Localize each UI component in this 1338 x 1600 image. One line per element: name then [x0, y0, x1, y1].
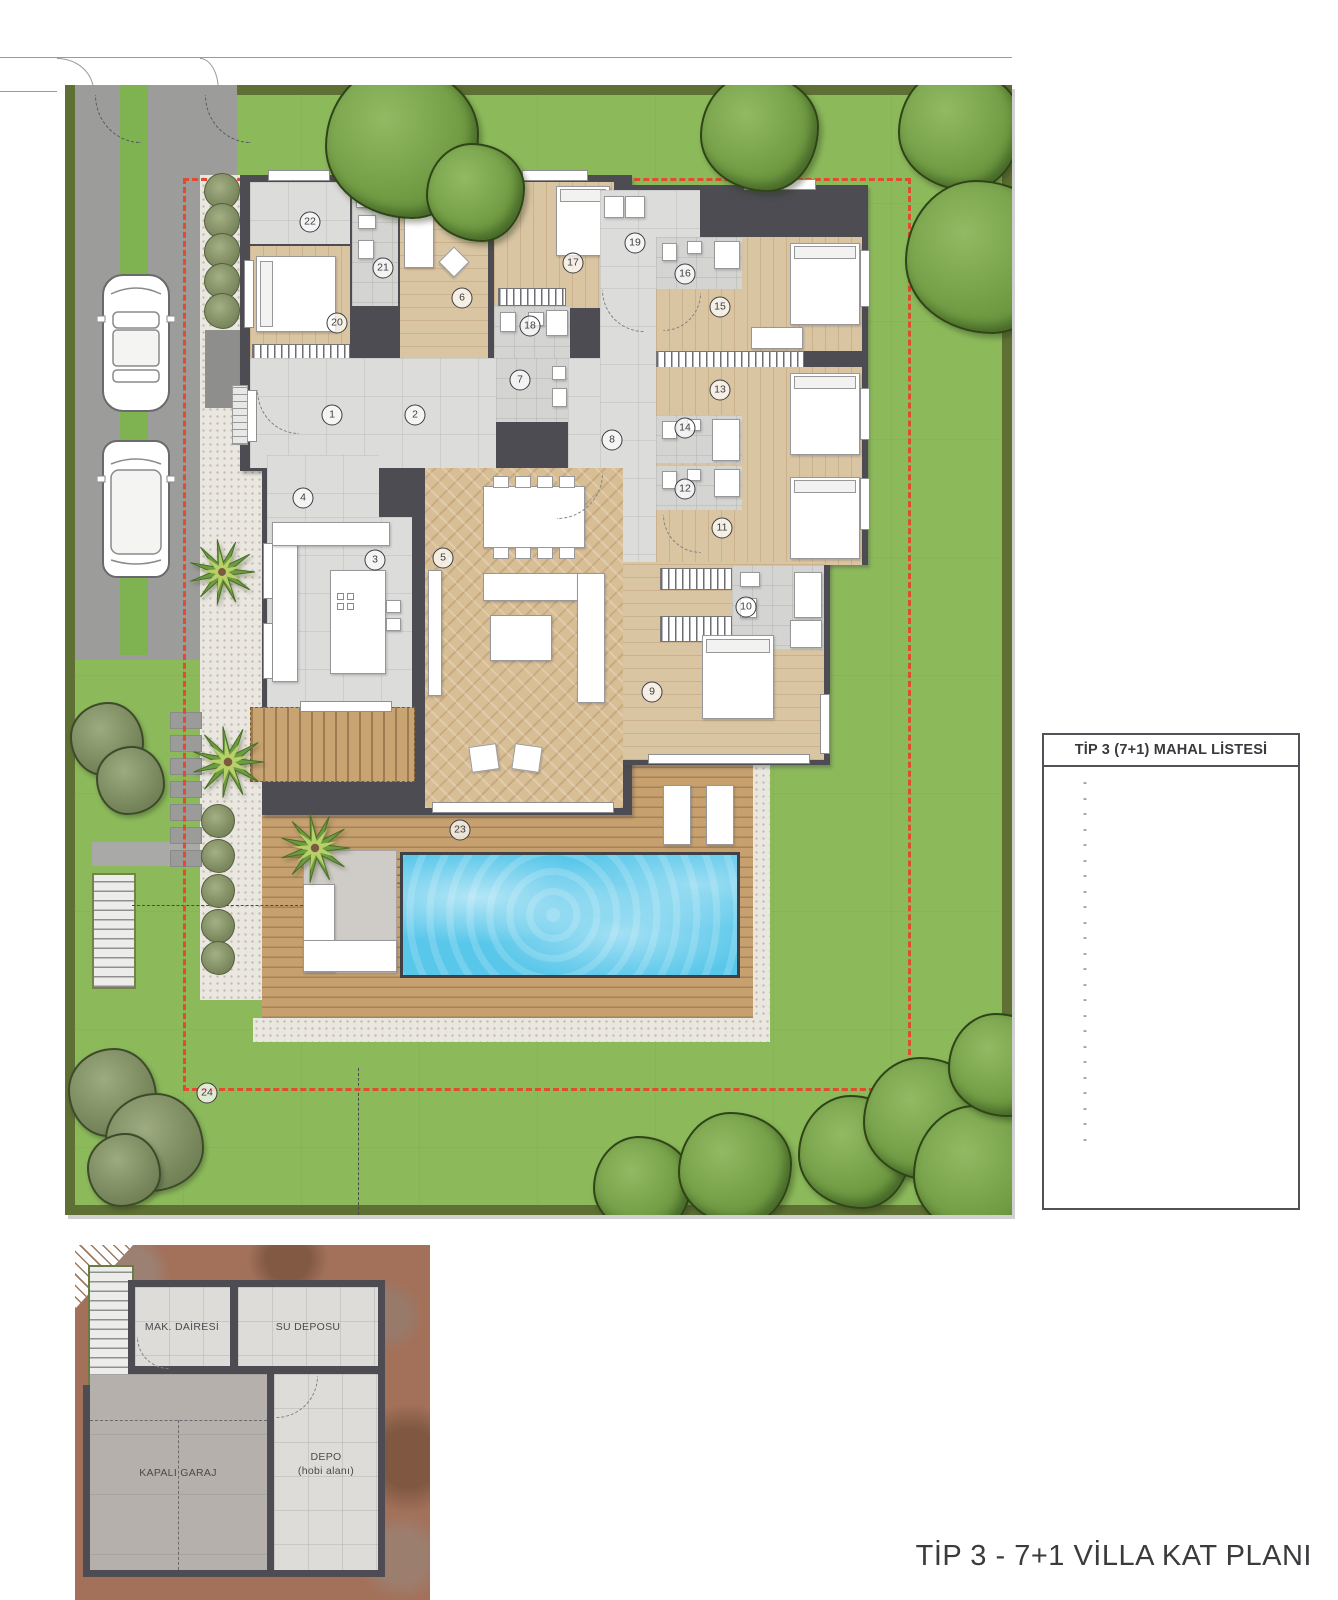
legend-row-no — [1054, 791, 1078, 807]
road-edge-line — [0, 57, 1012, 58]
legend-row: - — [1054, 992, 1288, 1008]
legend-row-name — [1092, 915, 1288, 931]
legend-row-dash: - — [1078, 806, 1092, 822]
legend-row-name — [1092, 837, 1288, 853]
room-marker: 10 — [736, 597, 757, 618]
room-marker: 18 — [520, 316, 541, 337]
legend-row: - — [1054, 884, 1288, 900]
plan-title: TİP 3 - 7+1 VİLLA KAT PLANI — [916, 1540, 1312, 1573]
legend-row: - — [1054, 1132, 1288, 1148]
floor-plan-sheet: 123456789101112131415161718192021222324 — [0, 0, 1338, 1600]
legend-row-no — [1054, 1116, 1078, 1132]
legend-row-dash: - — [1078, 992, 1092, 1008]
legend-row-no — [1054, 915, 1078, 931]
legend-row: - — [1054, 1070, 1288, 1086]
legend-row: - — [1054, 977, 1288, 993]
legend-row-dash: - — [1078, 915, 1092, 931]
legend-row-name — [1092, 961, 1288, 977]
legend-row-no — [1054, 1023, 1078, 1039]
legend-row-name — [1092, 1101, 1288, 1117]
legend-row: - — [1054, 1116, 1288, 1132]
wall — [230, 1287, 238, 1366]
legend-row: - — [1054, 775, 1288, 791]
room-marker: 21 — [373, 258, 394, 279]
room-marker: 15 — [710, 297, 731, 318]
legend-table: TİP 3 (7+1) MAHAL LİSTESİ - - - - - - - … — [1042, 733, 1300, 1210]
legend-row-dash: - — [1078, 1132, 1092, 1148]
legend-row-no — [1054, 868, 1078, 884]
basement-room-label: KAPALI GARAJ — [139, 1467, 217, 1479]
legend-row: - — [1054, 868, 1288, 884]
legend-row-dash: - — [1078, 899, 1092, 915]
legend-row-no — [1054, 1070, 1078, 1086]
legend-row: - — [1054, 1101, 1288, 1117]
legend-row-dash: - — [1078, 853, 1092, 869]
room-marker: 9 — [642, 682, 663, 703]
legend-row: - — [1054, 1039, 1288, 1055]
legend-row-dash: - — [1078, 775, 1092, 791]
legend-row-no — [1054, 961, 1078, 977]
room-marker: 20 — [327, 313, 348, 334]
legend-row-no — [1054, 1132, 1078, 1148]
area-range-note — [1303, 1250, 1310, 1270]
wall — [83, 1570, 385, 1577]
legend-row: - — [1054, 899, 1288, 915]
room-marker: 14 — [675, 418, 696, 439]
legend-row-dash: - — [1078, 1054, 1092, 1070]
legend-row-dash: - — [1078, 791, 1092, 807]
legend-row-no — [1054, 837, 1078, 853]
legend-row-no — [1054, 884, 1078, 900]
basement-room-label: MAK. DAİRESİ — [145, 1321, 219, 1333]
legend-row: - — [1054, 791, 1288, 807]
legend-row-dash: - — [1078, 961, 1092, 977]
room-marker: 24 — [197, 1083, 218, 1104]
legend-row: - — [1054, 915, 1288, 931]
room-marker: 6 — [452, 288, 473, 309]
area-range-note — [1303, 1270, 1310, 1290]
room-marker: 5 — [433, 548, 454, 569]
legend-row: - — [1054, 853, 1288, 869]
legend-row-dash: - — [1078, 946, 1092, 962]
legend-row-name — [1092, 992, 1288, 1008]
room-marker: 16 — [675, 264, 696, 285]
legend-row-dash: - — [1078, 837, 1092, 853]
room-marker: 22 — [300, 212, 321, 233]
legend-row-no — [1054, 806, 1078, 822]
room-marker: 8 — [602, 430, 623, 451]
legend-row: - — [1054, 837, 1288, 853]
site-plan: 123456789101112131415161718192021222324 — [65, 85, 1012, 1215]
wall — [128, 1287, 135, 1374]
legend-row-name — [1092, 822, 1288, 838]
legend-row: - — [1054, 822, 1288, 838]
legend-row-dash: - — [1078, 1101, 1092, 1117]
legend-row-name — [1092, 1132, 1288, 1148]
legend-row-dash: - — [1078, 1070, 1092, 1086]
legend-row-no — [1054, 899, 1078, 915]
legend-row-name — [1092, 1085, 1288, 1101]
legend-row: - — [1054, 930, 1288, 946]
room-marker: 3 — [365, 550, 386, 571]
legend-row-no — [1054, 977, 1078, 993]
legend-row-name — [1092, 1023, 1288, 1039]
basement-room-label: DEPO — [311, 1451, 342, 1463]
wall — [83, 1385, 90, 1577]
legend-row-dash: - — [1078, 1116, 1092, 1132]
legend-row: - — [1054, 806, 1288, 822]
room-marker: 12 — [675, 479, 696, 500]
wall — [267, 1374, 274, 1570]
legend-row-name — [1092, 1008, 1288, 1024]
legend-row-name — [1092, 1039, 1288, 1055]
legend-row: - — [1054, 961, 1288, 977]
legend-row: - — [1054, 1085, 1288, 1101]
legend-row: - — [1054, 1023, 1288, 1039]
legend-row-name — [1092, 946, 1288, 962]
legend-rows: - - - - - - - - - - - - - - - - - - - - — [1044, 767, 1298, 1147]
legend-row-dash: - — [1078, 1085, 1092, 1101]
legend-row-dash: - — [1078, 930, 1092, 946]
road-edge-line-2 — [0, 91, 57, 92]
room-marker: 11 — [712, 518, 733, 539]
legend-row-no — [1054, 1085, 1078, 1101]
room-marker: 23 — [450, 820, 471, 841]
room-marker: 19 — [625, 233, 646, 254]
legend-row-no — [1054, 853, 1078, 869]
legend-row-name — [1092, 1054, 1288, 1070]
legend-row-dash: - — [1078, 1023, 1092, 1039]
legend-row-name — [1092, 977, 1288, 993]
legend-row-name — [1092, 806, 1288, 822]
legend-row-name — [1092, 1116, 1288, 1132]
room-marker: 4 — [293, 488, 314, 509]
room-marker: 1 — [322, 405, 343, 426]
legend-row-name — [1092, 868, 1288, 884]
room-marker: 7 — [510, 370, 531, 391]
legend-row-no — [1054, 1054, 1078, 1070]
room-markers-layer: 123456789101112131415161718192021222324 — [65, 85, 1012, 1215]
legend-row: - — [1054, 1008, 1288, 1024]
legend-row-name — [1092, 775, 1288, 791]
room-marker: 13 — [710, 380, 731, 401]
basement-plan: MAK. DAİRESİ SU DEPOSU KAPALI GARAJ DEPO… — [75, 1245, 430, 1600]
basement-room-label: SU DEPOSU — [276, 1321, 341, 1333]
legend-row-name — [1092, 884, 1288, 900]
legend-title: TİP 3 (7+1) MAHAL LİSTESİ — [1044, 735, 1298, 767]
legend-row-name — [1092, 791, 1288, 807]
area-range-notes — [1303, 1250, 1310, 1290]
legend-row-no — [1054, 822, 1078, 838]
room-marker: 2 — [405, 405, 426, 426]
legend-row-dash: - — [1078, 868, 1092, 884]
legend-row-dash: - — [1078, 1008, 1092, 1024]
legend-row-name — [1092, 853, 1288, 869]
legend-row-name — [1092, 899, 1288, 915]
room-marker: 17 — [563, 253, 584, 274]
legend-row-no — [1054, 775, 1078, 791]
legend-row-no — [1054, 1039, 1078, 1055]
legend-row-name — [1092, 930, 1288, 946]
legend-row-no — [1054, 1101, 1078, 1117]
legend-row-dash: - — [1078, 977, 1092, 993]
garage-dash-line — [178, 1420, 179, 1570]
legend-row-dash: - — [1078, 884, 1092, 900]
legend-row: - — [1054, 1054, 1288, 1070]
wall — [378, 1280, 385, 1577]
legend-row-dash: - — [1078, 1039, 1092, 1055]
legend-row-name — [1092, 1070, 1288, 1086]
legend-row-dash: - — [1078, 822, 1092, 838]
legend-row: - — [1054, 946, 1288, 962]
legend-totals — [1044, 1147, 1298, 1153]
basement-room-sublabel: (hobi alanı) — [298, 1465, 354, 1477]
legend-row-no — [1054, 992, 1078, 1008]
legend-row-no — [1054, 930, 1078, 946]
legend-row-no — [1054, 946, 1078, 962]
wall — [128, 1280, 385, 1287]
legend-row-no — [1054, 1008, 1078, 1024]
